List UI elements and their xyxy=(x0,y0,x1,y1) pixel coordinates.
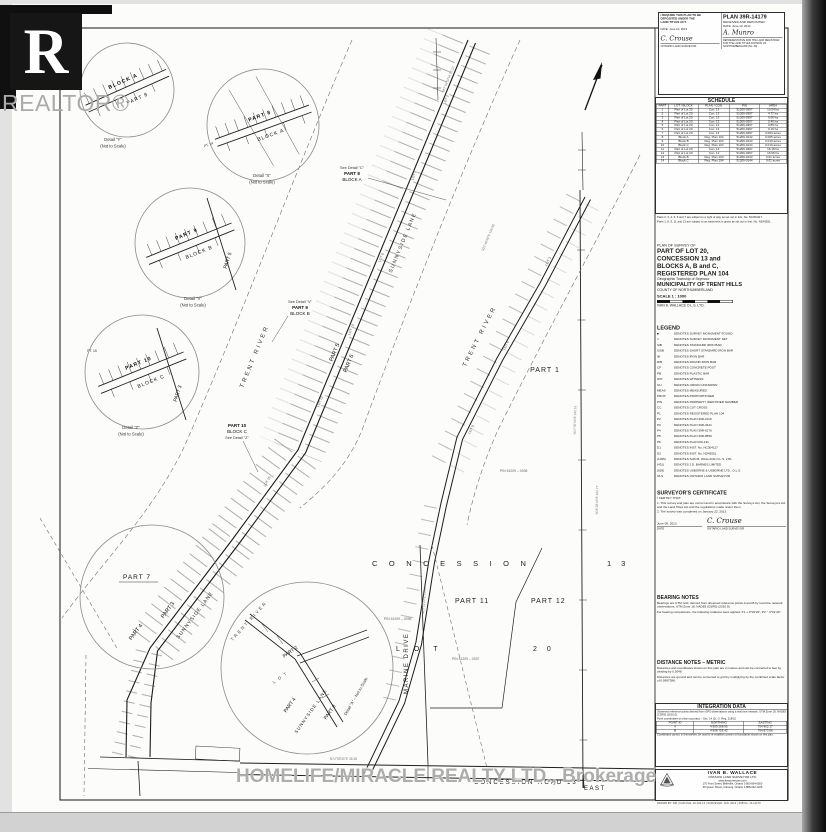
right-boundary-ticks xyxy=(433,52,588,740)
svg-text:N17°05'30"E 242.51: N17°05'30"E 242.51 xyxy=(573,405,578,434)
certificate-intro: I CERTIFY THAT: xyxy=(657,497,786,501)
schedule-block: SCHEDULE PART LOT / BLOCK PLAN / CON. PI… xyxy=(655,97,788,214)
trent-river-label-west: TRENT RIVER xyxy=(239,324,270,389)
surveyor-signature-left: C. Crouse xyxy=(661,35,720,43)
integration-footnote: Coordinates cannot, in themselves, be us… xyxy=(656,733,787,736)
detail3-caption-nts: (Not to Scale) xyxy=(180,303,206,308)
certificate-sig-sub: ONTARIO LAND SURVEYOR xyxy=(707,527,786,530)
realtor-logo: R xyxy=(10,13,82,90)
deposit-require-line3: LAND TITLES ACT. xyxy=(661,21,720,25)
concession-label: CONCESSION xyxy=(372,559,537,568)
detail2-part8-label: PART 8 xyxy=(248,110,273,124)
firm-logo xyxy=(656,772,678,787)
deposit-block: I REQUIRE THIS PLAN TO BE DEPOSITED UNDE… xyxy=(658,12,785,95)
detail6-part3-label: PART 3 xyxy=(323,704,338,722)
svg-text:See Detail "V": See Detail "V" xyxy=(288,300,312,304)
title-line3: BLOCKS A, B and C, xyxy=(657,263,786,271)
svg-text:N23°11'20"E 310.44: N23°11'20"E 310.44 xyxy=(421,585,427,614)
detail2-pt14-label: PT. 14 xyxy=(203,141,214,148)
svg-text:See Detail "Z": See Detail "Z" xyxy=(225,436,249,440)
detail3-part5-label: PART 5 xyxy=(223,251,234,269)
svg-text:BLOCK B: BLOCK B xyxy=(290,311,310,316)
svg-text:See Detail "C": See Detail "C" xyxy=(340,166,365,170)
certificate-block: SURVEYOR'S CERTIFICATE I CERTIFY THAT: 1… xyxy=(655,490,788,566)
title-line4: REGISTERED PLAN 104 xyxy=(657,270,786,278)
firm-block: IVAN B. WALLACE ONTARIO LAND SURVEYOR LT… xyxy=(655,769,788,801)
integration-row: B4 908 755.42754 873.66 xyxy=(656,729,787,733)
detail1-caption-nts: (Not to Scale) xyxy=(100,144,126,149)
part1-label: PART 1 xyxy=(530,367,560,374)
title-scale: SCALE 1 : 1000 xyxy=(657,294,786,299)
detail4-part10-label: PART 10 xyxy=(125,356,153,372)
schedule-table: PART LOT / BLOCK PLAN / CON. PIN AREA 1P… xyxy=(656,104,787,164)
detail4-part3-label: PART 3 xyxy=(173,384,184,402)
parcel-lines xyxy=(88,38,654,796)
detail4-caption-nts: (Not to Scale) xyxy=(118,432,144,437)
integration-table: POINT ID NORTHING EASTING A4 909 268.957… xyxy=(656,721,787,733)
title-line2: CONCESSION 13 and xyxy=(657,255,786,263)
svg-text:PART 10: PART 10 xyxy=(228,423,247,428)
detail4-pt15-label: PT. 15 xyxy=(87,349,97,353)
firm-addr2: 39 Queen Street, Cobourg, Ontario 1-888-… xyxy=(678,786,787,789)
schedule-note-2: Parts 1, 8, 9, 11 and 13 are subject to … xyxy=(657,220,786,223)
bearing-notes-block: BEARING NOTES Bearings are UTM Grid, der… xyxy=(655,595,788,657)
deposit-date-left: DATE: June 10, 2013 xyxy=(661,28,720,31)
detail6-sunnyside-label: SUNNYSIDE LANE xyxy=(293,688,328,735)
deposit-date-right: DATE: June 13, 2013 xyxy=(723,25,783,28)
scanned-survey-plan: BLOCK A PART 8 Detail "Y" (Not to Scale)… xyxy=(0,0,826,832)
plan-number: PLAN 39R-14179 xyxy=(723,14,783,20)
received-deposited: RECEIVED AND DEPOSITED xyxy=(723,21,783,25)
detail2-caption-nts: (Not to Scale) xyxy=(249,180,275,185)
detail-circle-2: PART 8 BLOCK A PT. 14 xyxy=(188,63,325,186)
deposit-right: PLAN 39R-14179 RECEIVED AND DEPOSITED DA… xyxy=(722,13,785,49)
plan-title-block: PLAN OF SURVEY OF PART OF LOT 20, CONCES… xyxy=(655,243,788,323)
svg-text:PART 8: PART 8 xyxy=(344,171,360,176)
svg-text:N72°59'30"E 35.38: N72°59'30"E 35.38 xyxy=(330,757,357,761)
detail3-block-b-label: BLOCK B xyxy=(185,245,214,261)
integration-note: Observed reference points derived from G… xyxy=(656,710,787,717)
bearing-notes-p2: For bearing comparisons, the following r… xyxy=(657,610,786,614)
detail4-caption: Detail "Z" xyxy=(122,425,140,430)
firm-file-line: DRAWN BY: DM | CAD FILE: 20-104-13 | SUR… xyxy=(655,802,788,810)
registrar-signature: A. Munro xyxy=(723,29,783,37)
title-line1: PART OF LOT 20, xyxy=(657,248,786,256)
legend-entry: OLSDENOTES ONTARIO LAND SURVEYOR xyxy=(657,474,786,480)
pin-label-1: PIN 51209 – 0398 xyxy=(500,469,527,473)
schedule-notes: Parts 2, 3, 4, 5, 6 and 7 are subject to… xyxy=(655,216,788,242)
detail1-caption: Detail "Y" xyxy=(104,137,122,142)
lane-lot-ticks xyxy=(111,24,601,761)
distance-notes-p2: Distances are ground and can be converte… xyxy=(657,675,786,683)
lot20-spread-label: 20 xyxy=(533,646,561,653)
svg-text:BLOCK A: BLOCK A xyxy=(342,177,361,182)
scale-bar xyxy=(657,300,733,303)
pin-label-3: PIN 51209 – 0396 xyxy=(384,617,411,621)
detail3-caption: Detail "V" xyxy=(184,296,202,301)
part11-label: PART 11 xyxy=(455,598,489,605)
detail3-part9-label: PART 9 xyxy=(174,227,199,242)
concession-13-label: 13 xyxy=(607,559,635,568)
svg-text:N22°40'50"E 156.08: N22°40'50"E 156.08 xyxy=(481,223,496,251)
legend-block: LEGEND ■DENOTES SURVEY MONUMENT FOUND □D… xyxy=(655,325,788,487)
schedule-row: 14Block CReg. Plan 10451209-01440.01 acr… xyxy=(656,159,787,163)
lane-centerlines xyxy=(126,40,591,779)
bearing-notes-p1: Bearings are UTM Grid, derived from obse… xyxy=(657,601,786,609)
deposit-left-sub: ONTARIO LAND SURVEYOR xyxy=(661,45,720,48)
part7-label: PART 7 xyxy=(123,574,151,581)
surveyor-triangle-icon xyxy=(659,772,676,787)
realtor-r-icon: R xyxy=(24,19,69,84)
realtor-wordmark: REALTOR® xyxy=(2,90,129,117)
detail6-lot-label: LOT xyxy=(272,669,291,684)
scan-edge-right xyxy=(802,0,826,832)
detail6-part2-label: PART 2 xyxy=(282,645,300,660)
certificate-date-sub: DATE xyxy=(657,527,702,530)
svg-text:BLOCK C: BLOCK C xyxy=(227,429,248,434)
certificate-signature: C. Crouse xyxy=(707,517,786,526)
distance-notes-block: DISTANCE NOTES – METRIC Distances and co… xyxy=(655,660,788,702)
certificate-item1: 1. This survey and plan are correct and … xyxy=(657,501,786,509)
svg-text:N16°28'40"E 402.77: N16°28'40"E 402.77 xyxy=(595,485,600,514)
registrar-note: REPRESENTATIVE FOR THE LAND REGISTRAR FO… xyxy=(723,39,783,48)
svg-text:PART 9: PART 9 xyxy=(292,305,308,310)
north-arrow xyxy=(585,62,602,110)
certificate-date: June 09, 2013 xyxy=(657,522,702,526)
brokerage-watermark: HOMELIFE/MIRACLE REALTY LTD., Brokerage xyxy=(236,766,656,788)
part12-label: PART 12 xyxy=(531,598,566,605)
title-firm: IVAN B. WALLACE O.L.S. LTD. xyxy=(657,304,786,308)
integration-block: INTEGRATION DATA Observed reference poin… xyxy=(655,703,788,767)
deposit-left: I REQUIRE THIS PLAN TO BE DEPOSITED UNDE… xyxy=(659,13,722,49)
scan-edge-bottom xyxy=(0,812,804,832)
detail2-caption: Detail "X" xyxy=(253,173,271,178)
detail2-block-a-label: BLOCK A xyxy=(257,128,286,143)
schedule-note-1: Parts 2, 3, 4, 5, 6 and 7 are subject to… xyxy=(657,216,786,219)
distance-notes-p1: Distances and coordinates shown on this … xyxy=(657,666,786,674)
detail4-block-c-label: BLOCK C xyxy=(137,374,166,390)
detail6-part4-label: PART 4 xyxy=(283,697,298,715)
title-county: COUNTY OF NORTHUMBERLAND xyxy=(657,288,786,292)
title-block-column: I REQUIRE THIS PLAN TO BE DEPOSITED UNDE… xyxy=(655,0,788,832)
callout-part10-blockc: PART 10 BLOCK C See Detail "Z" xyxy=(225,423,258,472)
certificate-item2: 2. The survey was completed on January 2… xyxy=(657,510,786,514)
pin-label-2: PIN 51209 – 0397 xyxy=(452,657,479,661)
detail6-caption: Detail "A" – Not to Scale xyxy=(343,676,369,716)
marine-drive-label: MARINE DRIVE xyxy=(404,633,410,694)
